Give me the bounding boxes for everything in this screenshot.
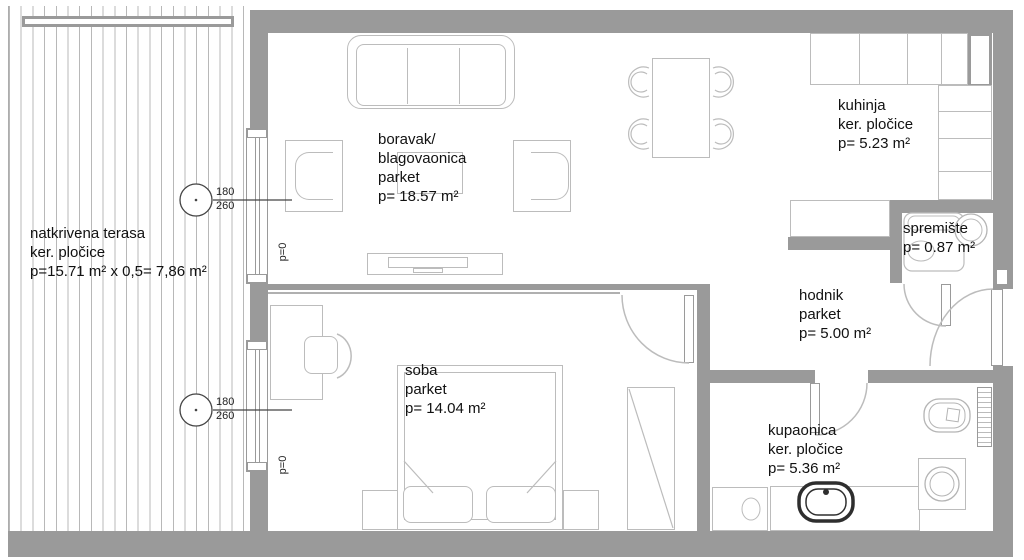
- window-cap: [247, 341, 267, 350]
- door-leaf-bedroom: [684, 295, 694, 363]
- tv-foot: [413, 268, 443, 273]
- sofa-seat-divider: [407, 48, 408, 104]
- room-area: p= 14.04 m²: [405, 399, 485, 418]
- wall-kitchen-stub: [788, 237, 892, 250]
- room-name: spremište: [903, 219, 975, 238]
- desk-chair-back: [337, 334, 351, 378]
- room-name: kupaonica: [768, 421, 843, 440]
- dining-chair: [629, 119, 649, 149]
- wall-top: [250, 10, 1013, 33]
- bathroom-counter: [770, 486, 920, 531]
- bathroom-label: kupaonica ker. pločice p= 5.36 m²: [768, 421, 843, 478]
- dining-chair-inner: [715, 124, 731, 144]
- room-finish: ker. pločice: [768, 440, 843, 459]
- window-living: [246, 128, 268, 284]
- room-area: p= 18.57 m²: [378, 187, 466, 206]
- dining-chair: [713, 119, 733, 149]
- wall-bathroom-left: [710, 370, 815, 383]
- cabinet-divider: [941, 34, 942, 84]
- nightstand-right: [563, 490, 599, 530]
- wardrobe: [627, 387, 675, 530]
- room-area: p=15.71 m² x 0,5= 7,86 m²: [30, 262, 207, 281]
- toilet-flush: [946, 408, 960, 422]
- wall-west-upper: [250, 10, 268, 128]
- cabinet-divider: [939, 171, 991, 172]
- door-arc-entrance: [930, 289, 993, 366]
- floor-plan: natkrivena terasa ker. pločice p=15.71 m…: [0, 0, 1024, 560]
- room-area: p= 5.36 m²: [768, 459, 843, 478]
- tv-screen: [388, 257, 468, 268]
- window-cap: [247, 274, 267, 283]
- room-name: boravak/: [378, 130, 466, 149]
- wall-niche: [995, 268, 1009, 286]
- room-finish: parket: [378, 168, 466, 187]
- pillow-left: [403, 486, 473, 523]
- radiator: [977, 387, 992, 447]
- door-leaf-storage: [941, 284, 951, 326]
- wall-bottom: [8, 531, 1013, 557]
- nightstand-left: [362, 490, 398, 530]
- toilet-rim: [929, 403, 965, 428]
- pillow-right: [486, 486, 556, 523]
- room-finish: parket: [405, 380, 485, 399]
- terrace-beam: [22, 16, 234, 27]
- cabinet-divider: [939, 138, 991, 139]
- dining-chair: [629, 67, 649, 97]
- wall-right-upper: [993, 10, 1013, 289]
- toilet: [924, 399, 970, 432]
- window-cap: [247, 129, 267, 138]
- parapet-annotation: p=0: [277, 235, 289, 269]
- kitchen-counter-right: [938, 85, 992, 200]
- terrace-label: natkrivena terasa ker. pločice p=15.71 m…: [30, 224, 207, 281]
- armchair-right-seat: [531, 152, 569, 200]
- room-finish: ker. pločice: [30, 243, 207, 262]
- dining-chair-inner: [631, 124, 647, 144]
- room-name: soba: [405, 361, 485, 380]
- hallway-label: hodnik parket p= 5.00 m²: [799, 286, 871, 343]
- kitchen-peninsula: [790, 200, 890, 237]
- wall-living-bedroom-inner-line: [268, 292, 620, 294]
- parapet-annotation: p=0: [277, 448, 289, 482]
- kitchen-counter-top: [810, 33, 968, 85]
- window-glazing: [255, 129, 260, 283]
- wall-storage-top: [890, 200, 993, 213]
- room-finish: ker. pločice: [838, 115, 913, 134]
- window-width: 180: [216, 395, 234, 409]
- cabinet-divider: [907, 34, 908, 84]
- room-name: hodnik: [799, 286, 871, 305]
- cabinet-divider: [859, 34, 860, 84]
- armchair-left-seat: [295, 152, 333, 200]
- room-name: blagovaonica: [378, 149, 466, 168]
- window-glazing: [255, 341, 260, 471]
- storage-label: spremište p= 0.87 m²: [903, 219, 975, 257]
- sofa-seat: [356, 44, 506, 106]
- window-height: 260: [216, 199, 234, 213]
- window-height: 260: [216, 409, 234, 423]
- room-area: p= 0.87 m²: [903, 238, 975, 257]
- wall-bathroom-right: [868, 370, 993, 383]
- desk-chair: [304, 336, 338, 374]
- cabinet-divider: [939, 111, 991, 112]
- door-leaf-entrance: [991, 289, 1003, 366]
- wall-living-bedroom: [268, 284, 697, 290]
- living-room-label: boravak/ blagovaonica parket p= 18.57 m²: [378, 130, 466, 206]
- room-area: p= 5.00 m²: [799, 324, 871, 343]
- window-marker-label: 180 260: [216, 395, 234, 423]
- shower-tray: [712, 487, 768, 531]
- washing-machine: [918, 458, 966, 510]
- room-name: kuhinja: [838, 96, 913, 115]
- wall-bedroom-hall: [697, 284, 710, 531]
- room-finish: parket: [799, 305, 871, 324]
- dining-chair: [713, 67, 733, 97]
- room-name: natkrivena terasa: [30, 224, 207, 243]
- wall-west-lower: [250, 472, 268, 531]
- bedroom-label: soba parket p= 14.04 m²: [405, 361, 485, 418]
- dining-chair-inner: [631, 72, 647, 92]
- window-bedroom: [246, 340, 268, 472]
- window-cap: [247, 462, 267, 471]
- window-marker-label: 180 260: [216, 185, 234, 213]
- dining-table: [652, 58, 710, 158]
- window-width: 180: [216, 185, 234, 199]
- fridge: [968, 33, 992, 87]
- dining-chair-inner: [715, 72, 731, 92]
- room-area: p= 5.23 m²: [838, 134, 913, 153]
- wall-west-middle: [250, 284, 268, 340]
- sofa-seat-divider: [459, 48, 460, 104]
- wall-right-lower: [993, 366, 1013, 531]
- door-arc-bedroom: [622, 295, 689, 363]
- kitchen-label: kuhinja ker. pločice p= 5.23 m²: [838, 96, 913, 153]
- door-arc-storage: [904, 284, 946, 326]
